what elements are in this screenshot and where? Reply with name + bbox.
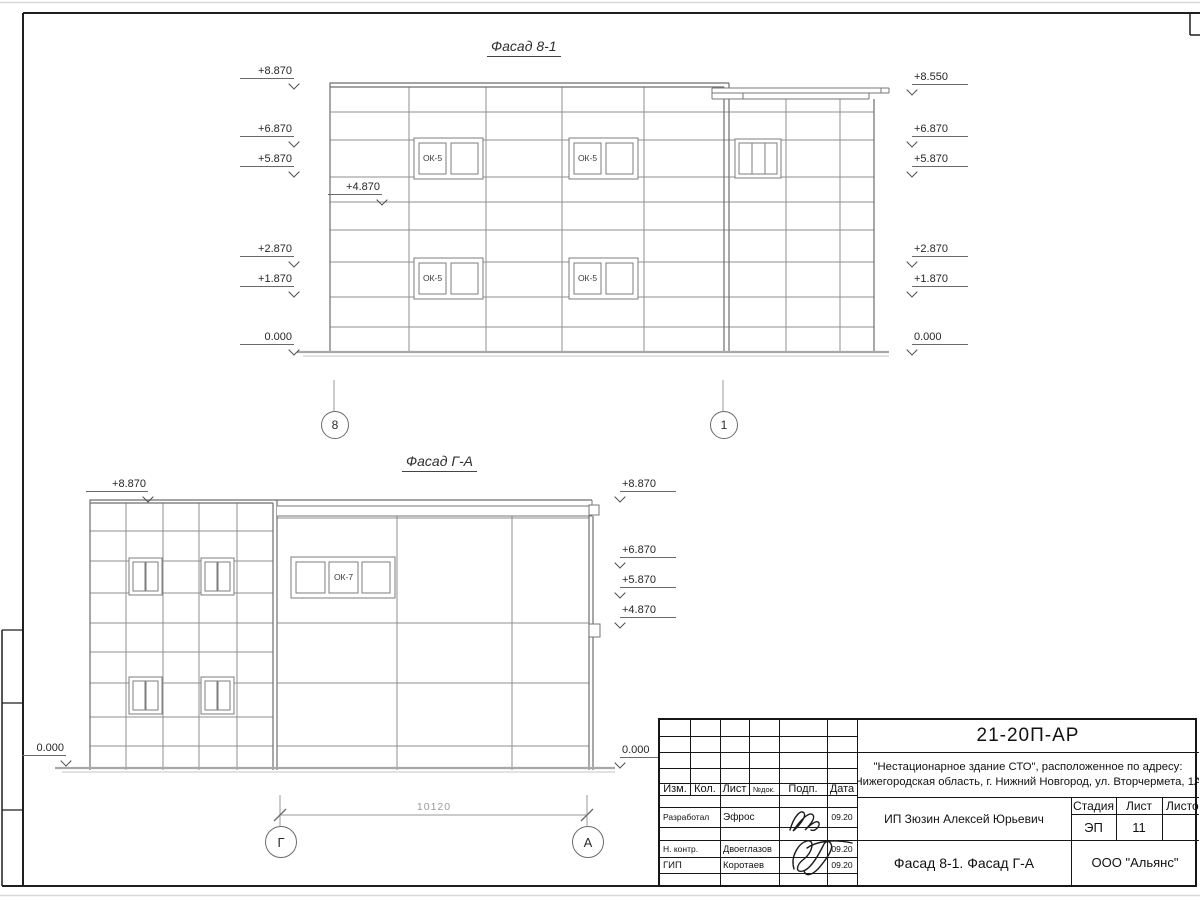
ground-line-1	[297, 352, 889, 356]
elevation-mark: 0.000	[912, 331, 968, 345]
canopy	[712, 88, 889, 99]
stamp-header-kol: Кол.	[690, 783, 720, 795]
axis-bubble-g: Г	[265, 826, 297, 858]
client-name: ИП Зюзин Алексей Юрьевич	[857, 797, 1071, 840]
facade-8-1-drawing	[297, 83, 889, 411]
elevation-mark: +5.870	[240, 153, 294, 167]
elevation-mark: +1.870	[912, 273, 968, 287]
stamp-header-izm: Изм.	[660, 783, 690, 795]
window-two-pane	[201, 677, 234, 714]
elevation-mark: +5.870	[912, 153, 968, 167]
ground-line-2	[55, 768, 615, 772]
stamp-date: 09.20	[827, 807, 857, 827]
sheet-number: 11	[1116, 814, 1162, 840]
sheet-title: Фасад 8-1. Фасад Г-А	[857, 840, 1071, 885]
elevation-mark: 0.000	[240, 331, 294, 345]
elevation-value: +6.870	[258, 123, 292, 135]
elevation-mark: +8.550	[912, 71, 968, 85]
elevation-value: 0.000	[264, 331, 292, 343]
stamp-role: Н. контр.	[663, 840, 719, 857]
stamp-date: 09.20	[827, 840, 857, 857]
window-label: ОК-5	[575, 153, 600, 163]
sheets-label: Листов	[1166, 797, 1199, 814]
window-label: ОК-5	[575, 273, 600, 283]
project-code: 21-20П-АР	[857, 720, 1199, 752]
elevation-value: +1.870	[914, 273, 948, 285]
window-two-pane	[201, 558, 234, 595]
window-label: ОК-5	[420, 153, 445, 163]
title-block: Изм. Кол. Лист №док. Подп. Дата Разработ…	[658, 718, 1197, 887]
elevation-mark: +4.870	[620, 604, 676, 618]
elevation-value: +8.870	[622, 478, 656, 490]
stamp-role: ГИП	[663, 857, 719, 873]
elevation-value: 0.000	[36, 742, 64, 754]
elevation-mark: +8.870	[86, 478, 148, 492]
elevation-value: +5.870	[914, 153, 948, 165]
facade-g-a-title: Фасад Г-А	[402, 453, 477, 472]
elevation-value: 0.000	[914, 331, 942, 343]
stamp-name: Коротаев	[723, 857, 777, 873]
elevation-mark: +2.870	[240, 243, 294, 257]
axis-bubble-8: 8	[321, 411, 349, 439]
stamp-header-data: Дата	[827, 783, 857, 795]
elevation-mark: +1.870	[240, 273, 294, 287]
elevation-mark: +5.870	[620, 574, 676, 588]
elevation-value: +8.550	[914, 71, 948, 83]
elevation-mark: +6.870	[240, 123, 294, 137]
elevation-mark: +6.870	[912, 123, 968, 137]
elevation-mark: +4.870	[328, 181, 382, 195]
company-name: ООО "Альянс"	[1071, 840, 1199, 885]
window-two-pane	[129, 558, 162, 595]
elevation-value: +1.870	[258, 273, 292, 285]
project-description-line2: Нижегородская область, г. Нижний Новгоро…	[857, 775, 1199, 790]
stamp-header-podp: Подп.	[779, 783, 827, 795]
elevation-value: +4.870	[622, 604, 656, 616]
elevation-value: +6.870	[622, 544, 656, 556]
elevation-value: 0.000	[622, 744, 650, 756]
elevation-mark: +2.870	[912, 243, 968, 257]
axis-leaders-1	[334, 380, 723, 411]
project-description: "Нестационарное здание СТО", расположенн…	[857, 752, 1199, 797]
elevation-mark: +8.870	[240, 65, 294, 79]
stamp-date: 09.20	[827, 857, 857, 873]
elevation-value: +2.870	[258, 243, 292, 255]
elevation-value: +4.870	[346, 181, 380, 193]
stamp-header-ndok: №док.	[749, 783, 779, 795]
elevation-value: +6.870	[914, 123, 948, 135]
project-description-line1: "Нестационарное здание СТО", расположенн…	[874, 760, 1183, 775]
window-two-pane	[129, 677, 162, 714]
elevation-value: +5.870	[258, 153, 292, 165]
elevation-mark: +6.870	[620, 544, 676, 558]
drawing-sheet: Фасад 8-1 Фасад Г-А +8.870 +6.870 +5.870…	[0, 0, 1200, 900]
stamp-name: Эфрос	[723, 807, 777, 827]
elevation-mark: 0.000	[22, 742, 66, 756]
window-label: ОК-5	[420, 273, 445, 283]
elevation-mark: +8.870	[620, 478, 676, 492]
stage-value: ЭП	[1071, 814, 1116, 840]
stamp-header-list: Лист	[720, 783, 749, 795]
stamp-name: Двоеглазов	[723, 840, 777, 857]
sheet-label: Лист	[1116, 797, 1162, 814]
window-three-pane	[735, 139, 781, 178]
stamp-role: Разработал	[663, 807, 719, 827]
facade-8-1-title: Фасад 8-1	[487, 38, 561, 57]
elevation-value: +8.870	[112, 478, 146, 490]
elevation-value: +2.870	[914, 243, 948, 255]
window-label: ОК-7	[328, 572, 359, 582]
stage-label: Стадия	[1071, 797, 1116, 814]
dimension-value: 10120	[399, 801, 469, 813]
axis-bubble-a: А	[572, 826, 604, 858]
facade-g-a-drawing	[55, 500, 615, 826]
elevation-value: +5.870	[622, 574, 656, 586]
elevation-value: +8.870	[258, 65, 292, 77]
axis-bubble-1: 1	[710, 411, 738, 439]
